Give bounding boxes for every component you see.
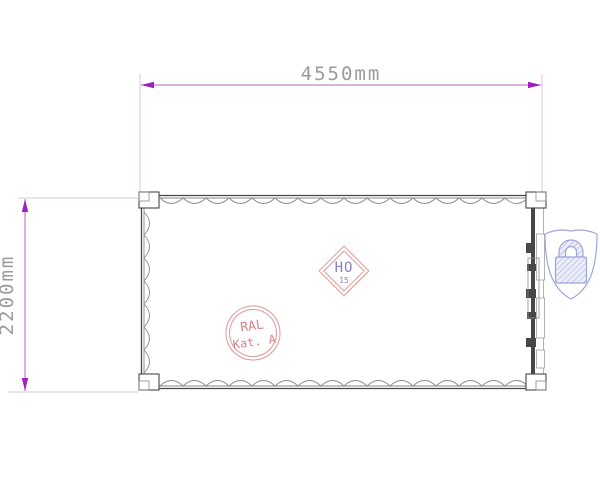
door-hinge [526,338,536,347]
ho-stamp-label: HO [335,260,354,276]
door-lock-hardware [526,289,536,298]
dimension-height: 2200mm [0,198,138,392]
wall-left [142,208,150,377]
width-dimension-label: 4550mm [301,63,382,85]
arrow-up-icon [22,199,28,212]
door-right [526,206,545,378]
arrow-left-icon [141,82,154,88]
corrugation-left [144,212,150,373]
door-hinge [526,243,531,253]
drawing-svg: 4550mm 2200mm [0,0,600,480]
corrugation-bottom [160,381,528,387]
padlock-body [556,257,587,283]
lock-shield-icon [545,230,597,299]
arrow-right-icon [528,82,541,88]
stamp-ral-circle: RAL Kat. A [223,303,284,364]
arrow-down-icon [22,378,28,391]
door-frame-segment [537,350,545,368]
stamp-ho-diamond: HO 15 [319,246,369,296]
ho-stamp-sublabel: 15 [339,276,349,285]
dimension-width: 4550mm [140,63,542,196]
wall-top [156,196,530,204]
wall-bottom [156,381,530,389]
corrugation-top [160,198,528,204]
door-frame-segment [537,234,545,280]
height-dimension-label: 2200mm [0,255,18,336]
technical-drawing-canvas: 4550mm 2200mm [0,0,600,480]
